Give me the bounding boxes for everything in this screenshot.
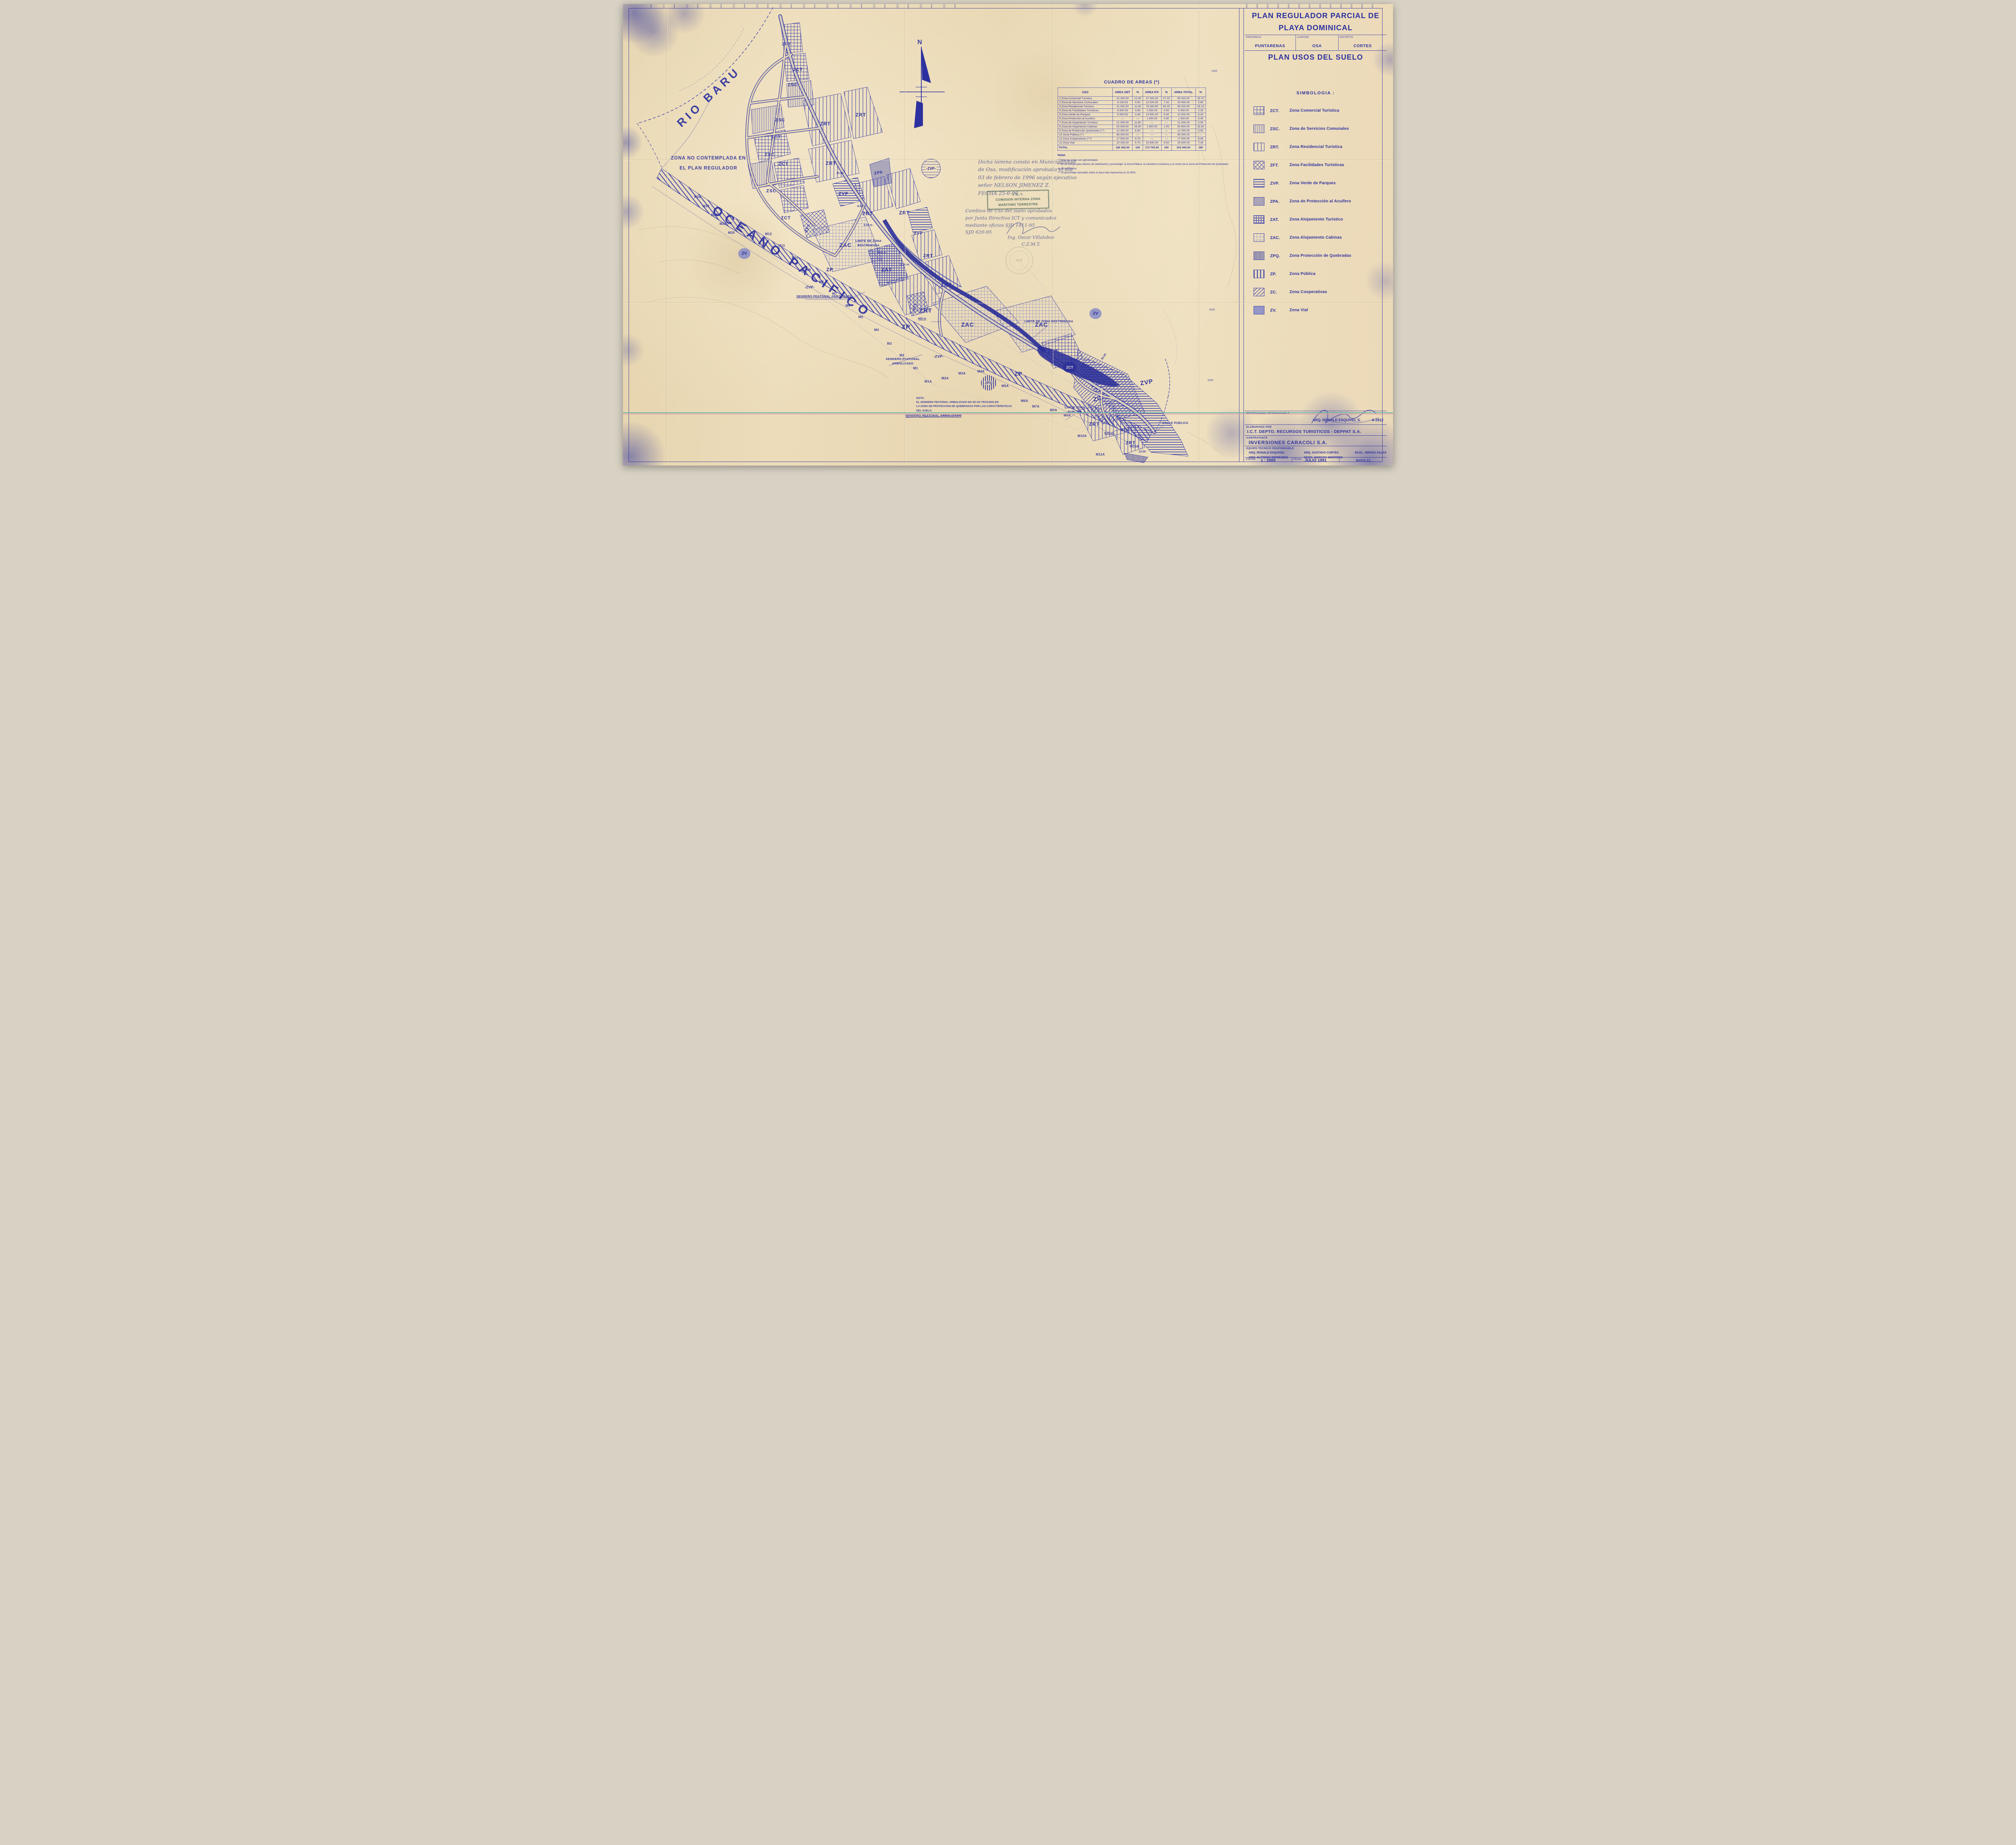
notas-label: Notas — [1058, 153, 1231, 158]
table-cell: 19.70 — [1195, 97, 1206, 101]
table-cell: 8 000.00 — [1112, 113, 1132, 117]
table-cell: 47 000.00 — [1143, 97, 1161, 101]
table-cell: 1.05 — [1161, 125, 1171, 129]
table-cell: 9.70 — [1133, 137, 1143, 141]
table-cell: 12 Zona Vial — [1058, 141, 1113, 145]
table-cell: — — [1133, 133, 1143, 137]
legend-label: Zona Facilidades Turísticas — [1289, 163, 1344, 167]
legend-code: ZC. — [1270, 290, 1284, 295]
ict-rect-stamp: I. C. T. COMISION INTERNA ZONA MARITIMO … — [987, 189, 1050, 210]
table-cell: 100 — [1161, 145, 1171, 151]
fecha-cell: FECHA JULIO 1991 — [1292, 458, 1340, 462]
table-cell: — — [1133, 117, 1143, 121]
areas-table: USOAREA ZMT%AREA P.P.%AREA TOTAL%1 Zona … — [1058, 87, 1206, 151]
table-cell: — — [1161, 129, 1171, 133]
location-fields: PROVINCIA PUNTARENAS CANTON OSA DISTRITO… — [1245, 35, 1387, 51]
table-cell: — — [1143, 137, 1161, 141]
table-cell: 28.15 — [1195, 105, 1206, 109]
rio-baru-line — [637, 7, 773, 168]
table-header: % — [1161, 88, 1171, 97]
north-arrow-icon — [900, 47, 945, 128]
table-cell: 0.45 — [1195, 117, 1206, 121]
table-row: 4 Zona de Facilidades Turísticas6 800.00… — [1058, 109, 1206, 113]
table-cell: 3.50 — [1195, 129, 1206, 133]
legend-label: Zona de Protección al Acuífero — [1289, 199, 1351, 204]
table-cell: 8 100.00 — [1112, 101, 1132, 105]
table-cell: 20 600.00 — [1171, 101, 1195, 105]
table-title: CUADRO DE AREAS (*) — [1058, 80, 1206, 85]
table-row: 8 Zona de Alojamiento Cabinas53 000.0029… — [1058, 125, 1206, 129]
table-cell: 11 Zona Cooperativas (***) — [1058, 137, 1113, 141]
table-cell: 1 500.00 — [1143, 117, 1161, 121]
legend-code: ZAT. — [1270, 217, 1284, 222]
table-cell: 100 — [1133, 145, 1143, 151]
table-cell: 8 Zona de Alojamiento Cabinas — [1058, 125, 1113, 129]
escala-cell: ESCALA 1 : 2000 — [1245, 458, 1292, 462]
legend-code: ZRT. — [1270, 145, 1284, 150]
table-cell: 6.80 — [1133, 129, 1143, 133]
table-cell: 29.50 — [1133, 125, 1143, 129]
table-cell: 172 700.00 — [1143, 145, 1161, 151]
field-canton: CANTON OSA — [1296, 35, 1339, 50]
stamp-line: MARITIMO TERRESTRE — [989, 202, 1047, 208]
table-cell: 3.80 — [1133, 109, 1143, 113]
table-cell: 1 800.00 — [1143, 125, 1161, 129]
legend-code: ZVP. — [1270, 181, 1284, 186]
sheet-title-line2: PLAYA DOMINICAL — [1245, 23, 1387, 32]
table-cell: 4.50 — [1133, 101, 1143, 105]
table-cell: 6 800.00 — [1112, 109, 1132, 113]
legend-label: Zona Pública — [1289, 272, 1316, 276]
escala-fecha-section: ESCALA 1 : 2000 FECHA JULIO 1991 MAPA 21 — [1245, 457, 1387, 462]
table-cell: 6.30 — [1195, 113, 1206, 117]
table-header: AREA ZMT — [1112, 88, 1132, 97]
table-header: % — [1133, 88, 1143, 97]
table-cell: — — [1195, 133, 1206, 137]
table-cell: 22 500.00 — [1171, 113, 1195, 117]
sheet-title-line1: PLAN REGULADOR PARCIAL DE — [1245, 11, 1387, 20]
legend-code: ZPQ. — [1270, 254, 1284, 258]
table-cell: 353 000.00 — [1171, 145, 1195, 151]
table-cell: 7.30 — [1195, 141, 1206, 145]
table-row: 10 Zona Pública (**)69 000.00———69 000.0… — [1058, 133, 1206, 137]
legend-item-zpa: ZPA.Zona de Protección al Acuífero — [1254, 197, 1385, 206]
legend-label: Zona Alojamiento Cabinas — [1289, 235, 1342, 240]
legend-item-zrt: ZRT.Zona Residencial Turística — [1254, 143, 1385, 151]
legend-swatch — [1254, 125, 1264, 133]
table-cell: TOTAL — [1058, 145, 1113, 151]
legend-item-zsc: ZSC.Zona de Servicios Comunales — [1254, 125, 1385, 133]
table-cell: 10 200.00 — [1112, 141, 1132, 145]
table-cell: 21 000.00 — [1171, 121, 1195, 125]
table-row: 2 Zona de Servicios Comunales8 100.004.5… — [1058, 101, 1206, 105]
table-cell: 15.50 — [1195, 125, 1206, 129]
table-cell: 69 000.00 — [1112, 133, 1132, 137]
table-row: 12 Zona Vial10 200.005.7015 600.009.0025… — [1058, 141, 1206, 145]
contratante-section: CONTRATANTE INVERSIONES CARACOLI S.A. — [1245, 435, 1387, 446]
legend-swatch — [1254, 288, 1264, 296]
table-cell: 1 500.00 — [1143, 109, 1161, 113]
table-cell: 9.00 — [1161, 141, 1171, 145]
table-cell: 7.30 — [1161, 101, 1171, 105]
table-cell: — — [1112, 117, 1132, 121]
sheet-subtitle: PLAN USOS DEL SUELO — [1245, 53, 1387, 62]
table-cell: 1 Zona Comercial Turística — [1058, 97, 1113, 101]
table-cell: 78 300.00 — [1143, 105, 1161, 109]
legend-swatch — [1254, 270, 1264, 278]
legend-label: Zona Verde de Parques — [1289, 181, 1336, 185]
table-cell: 2 Zona de Servicios Comunales — [1058, 101, 1113, 105]
table-row: 3 Zona Residencial Turística21 000.0011.… — [1058, 105, 1206, 109]
table-cell: — — [1143, 133, 1161, 137]
legend-label: Zona de Servicios Comunales — [1289, 127, 1349, 131]
table-cell: 99 300.00 — [1171, 105, 1195, 109]
legend-item-zp: ZP.Zona Pública — [1254, 270, 1385, 278]
table-cell: 100 — [1195, 145, 1206, 151]
table-cell: — — [1143, 121, 1161, 125]
table-note: *** El porcentaje calculado sobre el áre… — [1058, 171, 1231, 175]
table-cell: 6 Zona Protección al Acuífero — [1058, 117, 1113, 121]
table-cell: 11.60 — [1133, 121, 1143, 125]
legend-item-zv: ZV.Zona Vial — [1254, 306, 1385, 314]
blueprint-sheet: RIO BARUOCEANO PACIFICOZONA NO CONTEMPLA… — [623, 4, 1393, 466]
table-cell: 54 800.00 — [1171, 125, 1195, 129]
table-cell: 17 500.00 — [1112, 137, 1132, 141]
elaborado-section: ELABORADO POR I.C.T. DEPTO. RECURSOS TUR… — [1245, 424, 1387, 436]
legend-swatch — [1254, 233, 1264, 242]
table-row: 1 Zona Comercial Turística22 400.0012.40… — [1058, 97, 1206, 101]
legend-code: ZFT. — [1270, 163, 1284, 168]
table-cell: 25 800.00 — [1171, 141, 1195, 145]
field-provincia: PROVINCIA PUNTARENAS — [1245, 35, 1296, 50]
legend-item-zpq: ZPQ.Zona Protección de Quebradas — [1254, 252, 1385, 260]
table-cell: 14 500.00 — [1143, 113, 1161, 117]
table-cell: 5.95 — [1195, 121, 1206, 125]
table-cell: 5.70 — [1133, 141, 1143, 145]
legend-swatch — [1254, 106, 1264, 115]
legend-code: ZV. — [1270, 308, 1284, 313]
ict-round-stamp: I.C.T. — [1006, 247, 1033, 274]
table-cell: 9 Zona de Protección Quebradas (**) — [1058, 129, 1113, 133]
legend-label: Zona Residencial Turística — [1289, 145, 1342, 149]
table-cell: 15 600.00 — [1143, 141, 1161, 145]
legend-label: Zona Protección de Quebradas — [1289, 254, 1351, 258]
table-cell: — — [1161, 133, 1171, 137]
legend-label: Zona Comercial Turística — [1289, 108, 1339, 113]
table-cell: 12 500.00 — [1143, 101, 1161, 105]
mapa-cell: MAPA 21 — [1339, 458, 1387, 462]
table-cell: 69 000.00 — [1171, 133, 1195, 137]
table-cell: 0.90 — [1161, 109, 1171, 113]
legend-swatch — [1254, 306, 1264, 314]
table-row: 5 Zona Verde de Parques8 000.004.4014 50… — [1058, 113, 1206, 117]
legend-swatch — [1254, 179, 1264, 187]
table-cell: 8 300.00 — [1171, 109, 1195, 113]
table-cell: 4 Zona de Facilidades Turísticas — [1058, 109, 1113, 113]
legend-item-zct: ZCT.Zona Comercial Turística — [1254, 106, 1385, 115]
table-cell: 4.40 — [1133, 113, 1143, 117]
table-header: % — [1195, 88, 1206, 97]
legend-code: ZAC. — [1270, 235, 1284, 240]
table-cell: 180 300.00 — [1112, 145, 1132, 151]
table-cell: 12 300.00 — [1112, 129, 1132, 133]
field-distrito: DISTRITO CORTES — [1339, 35, 1387, 50]
legend-code: ZCT. — [1270, 108, 1284, 113]
table-header: AREA TOTAL — [1171, 88, 1195, 97]
legend-swatch — [1254, 197, 1264, 206]
legend-item-zvp: ZVP.Zona Verde de Parques — [1254, 179, 1385, 187]
table-cell: 4.95 — [1195, 137, 1206, 141]
table-cell: 12.40 — [1133, 97, 1143, 101]
table-cell: 2.35 — [1195, 109, 1206, 113]
table-cell: 11.60 — [1133, 105, 1143, 109]
table-cell: 27.20 — [1161, 97, 1171, 101]
legend-item-zft: ZFT.Zona Facilidades Turísticas — [1254, 161, 1385, 169]
table-cell: 17 500.00 — [1171, 137, 1195, 141]
legend-swatch — [1254, 215, 1264, 224]
table-note: * Todas las áreas son aproximadas — [1058, 158, 1231, 162]
legend-swatch — [1254, 252, 1264, 260]
equipo-section: EQUIPO TECNICO RESPONSABLE ARQ. RONALD E… — [1245, 446, 1387, 458]
table-cell: 53 000.00 — [1112, 125, 1132, 129]
cuadro-de-areas: CUADRO DE AREAS (*) USOAREA ZMT%AREA P.P… — [1058, 80, 1206, 175]
handwritten-signature-stroke — [1007, 223, 1060, 234]
table-cell: 69 400.00 — [1171, 97, 1195, 101]
legend-label: Zona Vial — [1289, 308, 1308, 312]
table-row: 9 Zona de Protección Quebradas (**)12 30… — [1058, 129, 1206, 133]
table-cell: 0.90 — [1161, 117, 1171, 121]
legend-code: ZSC. — [1270, 127, 1284, 131]
legend-item-zat: ZAT.Zona Alojamiento Turístico — [1254, 215, 1385, 224]
table-cell: 8.40 — [1161, 113, 1171, 117]
table-cell: 10 Zona Pública (**) — [1058, 133, 1113, 137]
table-row: 7 Zona de Alojamiento Turístico21 000.00… — [1058, 121, 1206, 125]
table-cell: 21 000.00 — [1112, 105, 1132, 109]
legend-swatch — [1254, 161, 1264, 169]
legend-item-zc: ZC.Zona Cooperativas — [1254, 288, 1385, 296]
legend-code: ZP. — [1270, 272, 1284, 277]
legend-swatch — [1254, 143, 1264, 151]
table-cell: 1 500.00 — [1171, 117, 1195, 121]
table-cell: 3 Zona Residencial Turística — [1058, 105, 1113, 109]
table-cell: — — [1143, 129, 1161, 133]
legend-code: ZPA. — [1270, 199, 1284, 204]
table-header: USO — [1058, 88, 1113, 97]
table-cell: 22 400.00 — [1112, 97, 1132, 101]
table-row: 6 Zona Protección al Acuífero——1 500.000… — [1058, 117, 1206, 121]
table-cell: 21 000.00 — [1112, 121, 1132, 125]
table-row: 11 Zona Cooperativas (***)17 500.009.70—… — [1058, 137, 1206, 141]
legend-label: Zona Cooperativas — [1289, 290, 1327, 294]
legend-label: Zona Alojamiento Turístico — [1289, 217, 1343, 222]
table-cell: 5 Zona Verde de Parques — [1058, 113, 1113, 117]
table-cell: 7 Zona de Alojamiento Turístico — [1058, 121, 1113, 125]
table-cell: — — [1161, 137, 1171, 141]
legend-item-zac: ZAC.Zona Alojamiento Cabinas — [1254, 233, 1385, 242]
table-total-row: TOTAL180 300.00100172 700.00100353 000.0… — [1058, 145, 1206, 151]
table-header: AREA P.P. — [1143, 88, 1161, 97]
table-note: ** No se incluye para efectos de totaliz… — [1058, 162, 1231, 171]
table-notes: Notas * Todas las áreas son aproximadas*… — [1058, 153, 1231, 175]
table-cell: — — [1161, 121, 1171, 125]
table-cell: 12 300.00 — [1171, 129, 1195, 133]
table-cell: 45.25 — [1161, 105, 1171, 109]
profesional-section: PROFESIONAL RESPONSABLE ARQ. RONALD ESQU… — [1245, 411, 1387, 425]
legend-title: SIMBOLOGIA : — [1245, 91, 1387, 96]
title-block-panel: PLAN REGULADOR PARCIAL DE PLAYA DOMINICA… — [1245, 8, 1387, 462]
table-cell: 5.85 — [1195, 101, 1206, 105]
